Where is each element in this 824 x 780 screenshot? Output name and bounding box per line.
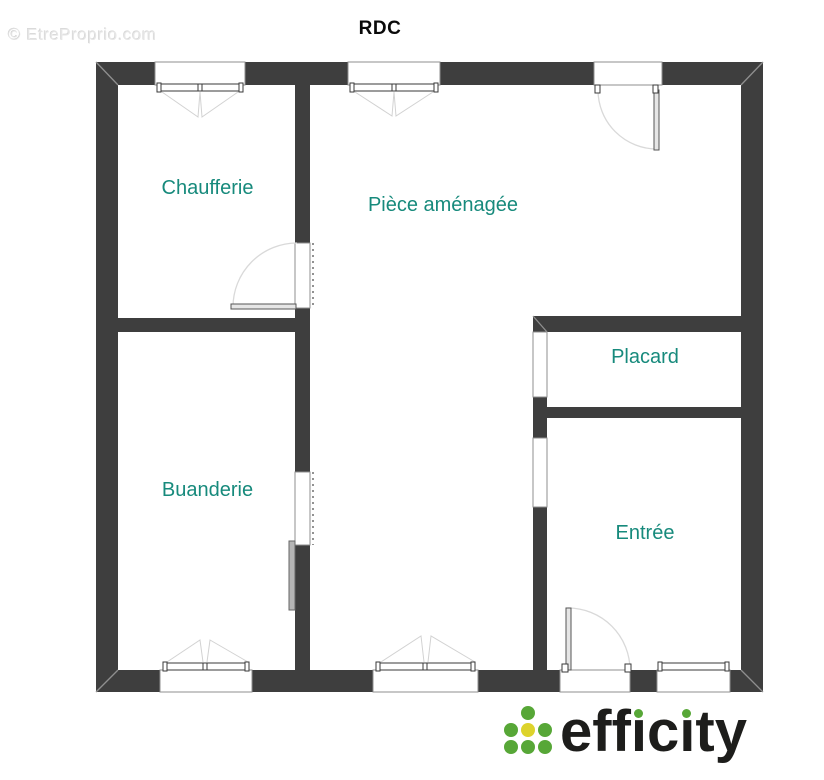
efficity-wordmark: effıcıty — [560, 703, 747, 761]
efficity-dots-icon — [504, 706, 552, 754]
window-piece-bottom — [373, 636, 478, 692]
window-entree-bottom — [657, 662, 730, 692]
door-leaf — [566, 608, 571, 670]
room-label-piece-amenagee: Pièce aménagée — [348, 194, 538, 217]
interior-walls — [118, 85, 741, 670]
window-chaufferie-top — [155, 62, 245, 117]
room-label-placard: Placard — [595, 346, 695, 369]
room-label-buanderie: Buanderie — [140, 479, 275, 502]
floor-plan-page: © EtreProprio.com RDC — [0, 0, 824, 780]
corner-bevels — [96, 62, 763, 692]
wall-placard-entree — [538, 407, 741, 418]
wall-center-vertical — [295, 85, 310, 670]
door-leaf — [654, 90, 659, 150]
window-piece-top — [348, 62, 440, 116]
exterior-walls — [96, 62, 763, 692]
door-leaf — [231, 304, 296, 309]
sliding-door-leaf — [289, 541, 295, 610]
door-entree — [560, 608, 631, 692]
door-chaufferie — [231, 243, 313, 309]
room-label-chaufferie: Chaufferie — [140, 177, 275, 200]
room-label-entree: Entrée — [595, 522, 695, 545]
opening-placard — [533, 332, 547, 397]
opening-entree — [533, 438, 547, 507]
wall-chaufferie-buanderie — [118, 318, 295, 332]
wall-left — [96, 62, 118, 692]
wall-placard-top — [533, 316, 741, 332]
wall-right — [741, 62, 763, 692]
window-buanderie-bottom — [160, 640, 252, 692]
door-piece-top — [594, 62, 662, 150]
floor-plan — [0, 0, 824, 780]
efficity-logo: effıcıty — [504, 703, 804, 775]
